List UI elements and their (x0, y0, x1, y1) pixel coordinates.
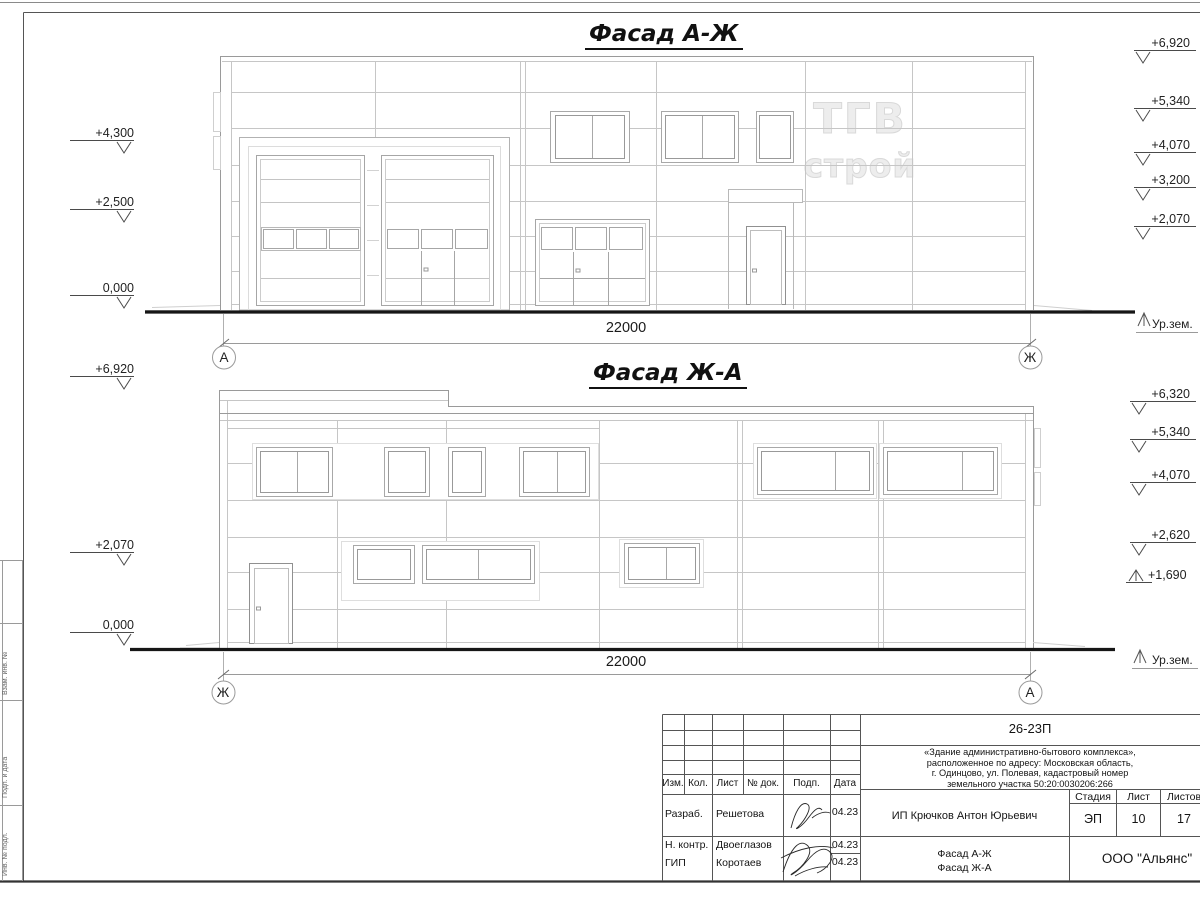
drawing-title-line1: Фасад А-Ж (862, 848, 1067, 860)
axis-marker-label: А (1018, 685, 1042, 700)
client-name: ИП Крючков Антон Юрьевич (862, 810, 1067, 822)
elevation-mark: +4,070 (1134, 138, 1196, 153)
sheet-label: Лист (1117, 791, 1160, 803)
row-role: Н. контр. (665, 839, 708, 851)
row-name: Двоеглазов (716, 839, 772, 851)
row-role: Разраб. (665, 808, 703, 820)
row-role: ГИП (665, 857, 686, 869)
organization-name: ООО "Альянс" (1069, 851, 1200, 866)
elevation-mark: +5,340 (1134, 94, 1196, 109)
row-name: Решетова (716, 808, 764, 820)
facade2-openings (250, 444, 1002, 644)
facade1-title: Фасад А-Ж (585, 21, 743, 50)
facade2-title: Фасад Ж-А (589, 360, 747, 389)
elevation-mark: +3,200 (1134, 173, 1196, 188)
side-strip-label: Инв. № подл. (2, 832, 9, 876)
dimension-label: 22000 (561, 320, 691, 336)
axis-marker-label: Ж (1018, 350, 1042, 365)
drawing-title-line2: Фасад Ж-А (862, 862, 1067, 874)
facade2-panel-joints (219, 400, 1033, 648)
row-date: 04.23 (830, 856, 860, 868)
elevation-mark: +2,070 (1134, 212, 1196, 227)
elevation-mark: 0,000 (70, 618, 134, 633)
signatures (781, 804, 833, 876)
elevation-mark: +6,920 (70, 362, 134, 377)
ground-level-label: Ур.зем. (1152, 317, 1193, 331)
elevation-mark: +6,920 (1134, 36, 1196, 51)
elevation-mark: +2,500 (70, 195, 134, 210)
drawing-sheet: ТГВ строй (0, 0, 1200, 900)
row-name: Коротаев (716, 857, 761, 869)
elevation-mark: +6,320 (1130, 387, 1196, 402)
row-date: 04.23 (830, 806, 860, 818)
row-date: 04.23 (830, 839, 860, 851)
axis-marker-label: А (212, 350, 236, 365)
elevation-mark: +4,070 (1130, 468, 1196, 483)
ground-level-label: Ур.зем. (1152, 653, 1193, 667)
elevation-mark: +5,340 (1130, 425, 1196, 440)
elevation-mark: +2,070 (70, 538, 134, 553)
dimension-label: 22000 (561, 654, 691, 670)
stage-label: Стадия (1070, 791, 1116, 803)
elevation-mark: +4,300 (70, 126, 134, 141)
elevation-mark: 0,000 (70, 281, 134, 296)
side-strip-label: Подп. и дата (2, 757, 9, 798)
sheets-label: Листов (1162, 791, 1200, 803)
axis-marker-label: Ж (211, 685, 235, 700)
sheet-number: 10 (1117, 812, 1160, 826)
elevation-mark: +2,620 (1130, 528, 1196, 543)
sheets-total: 17 (1162, 812, 1200, 826)
document-number: 26-23П (862, 721, 1198, 736)
side-strip-label: Взам. инв. № (2, 652, 9, 695)
stage-value: ЭП (1070, 812, 1116, 826)
